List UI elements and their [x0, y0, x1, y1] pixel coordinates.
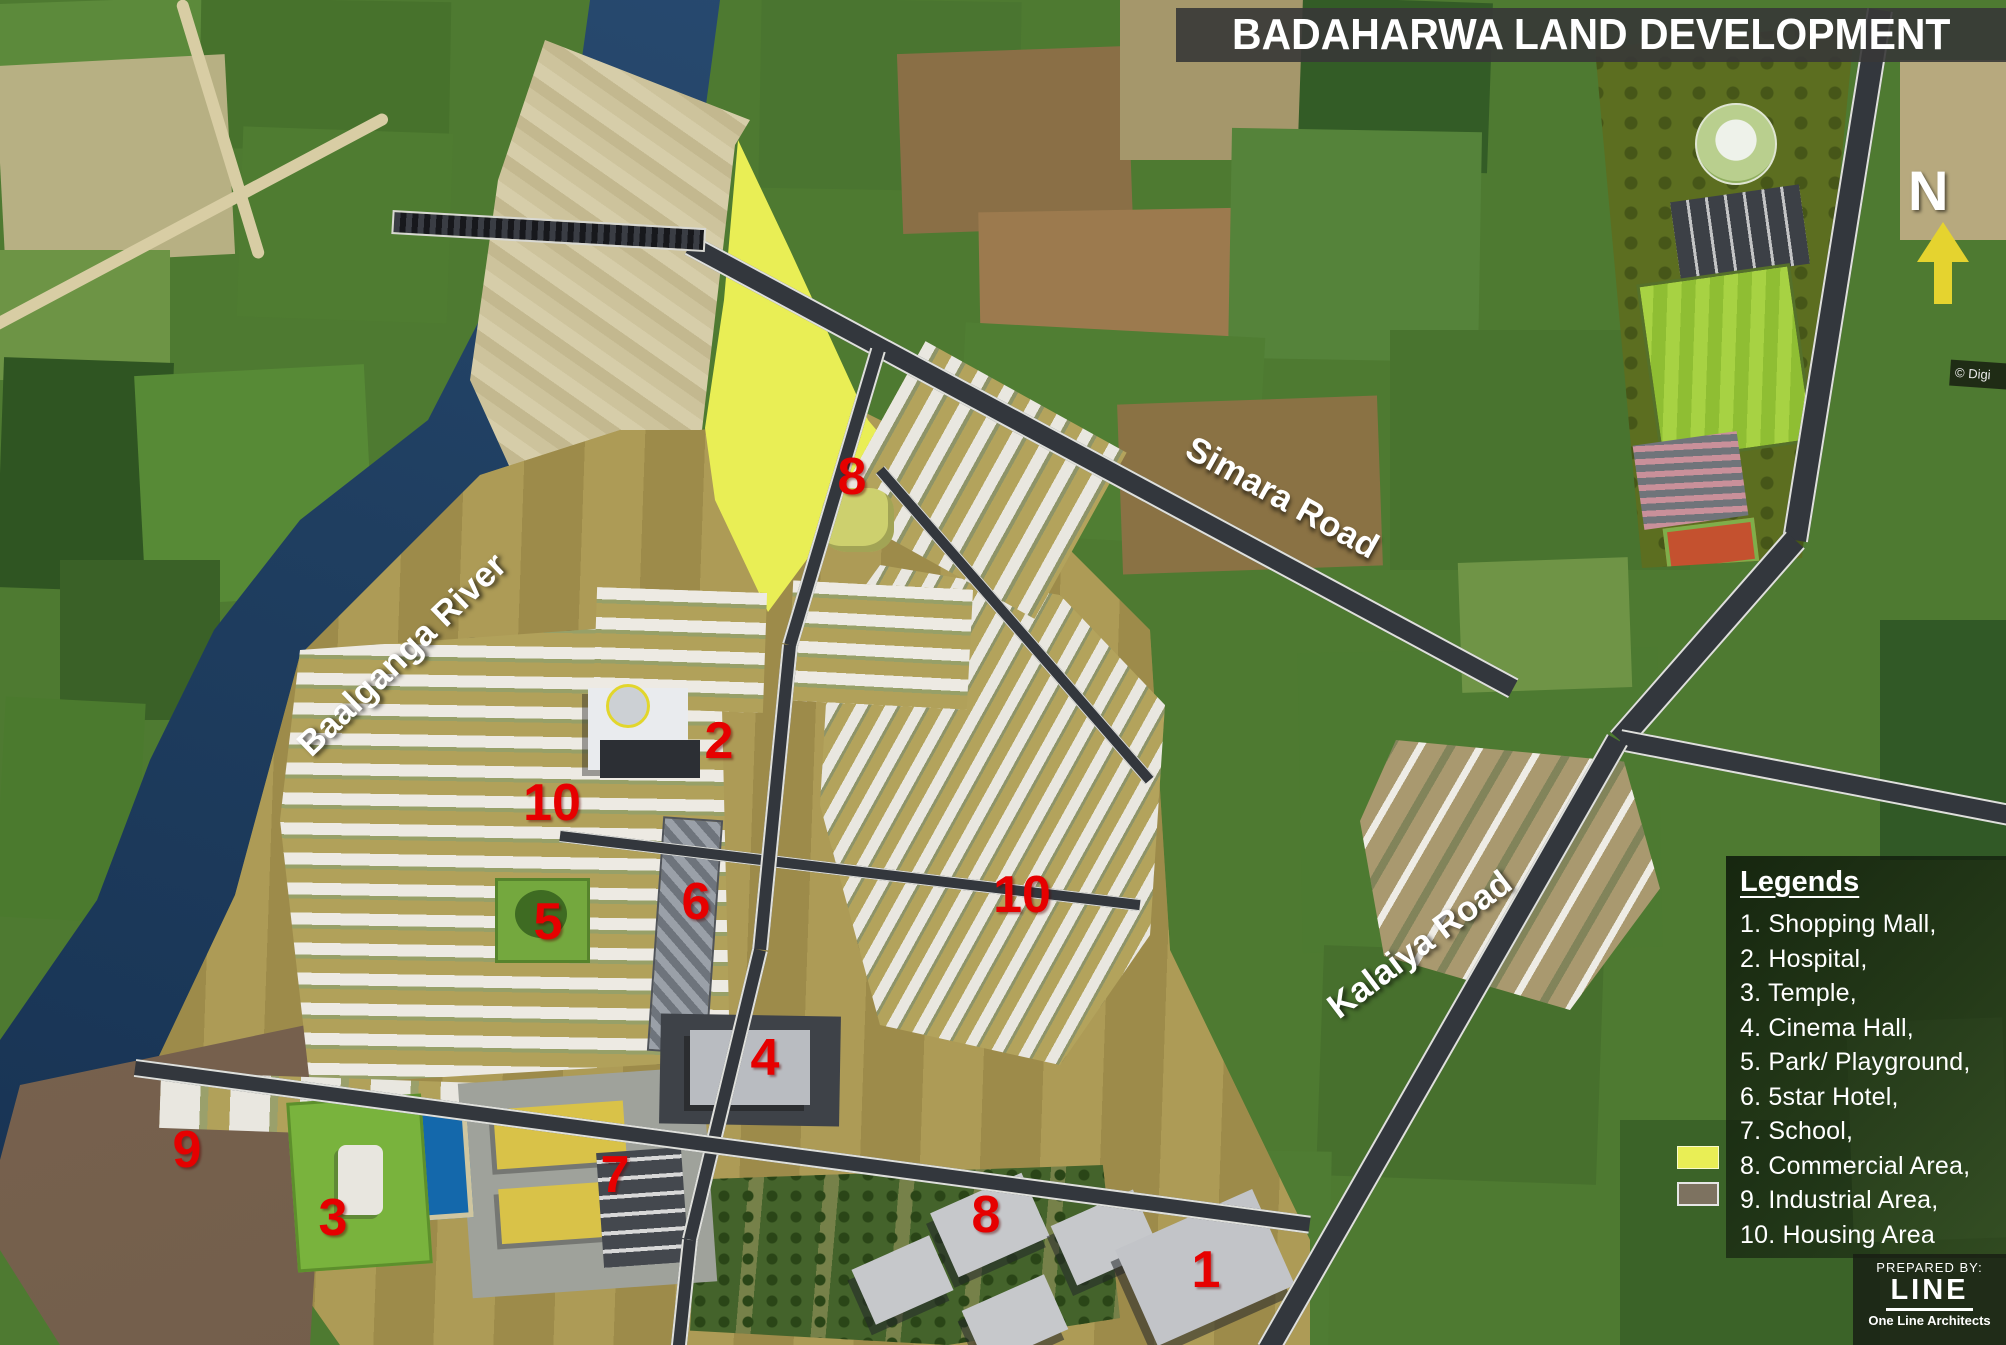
field-patch — [1228, 128, 1482, 362]
map-canvas: Simara Road Kalaiya Road Baalganga River… — [0, 0, 2006, 1345]
marker-commercial-north: 8 — [838, 451, 867, 503]
marker-park-playground: 5 — [534, 896, 563, 948]
legend-item: 3. Temple, — [1740, 976, 2000, 1011]
marker-housing-east: 10 — [993, 869, 1051, 921]
legend-item: 8. Commercial Area, — [1740, 1149, 2000, 1184]
playground-circle — [1695, 103, 1777, 185]
title-bar: BADAHARWA LAND DEVELOPMENT — [1176, 8, 2006, 62]
car-park-rows — [1633, 431, 1749, 530]
marker-commercial-south: 8 — [972, 1189, 1001, 1241]
legend-swatch-industrial — [1677, 1182, 1719, 1206]
legend-item: 2. Hospital, — [1740, 942, 2000, 977]
marker-hospital: 2 — [705, 715, 734, 767]
architect-logo: LINE — [1886, 1275, 1972, 1311]
sports-court — [1663, 518, 1760, 574]
legend-item: 9. Industrial Area, — [1740, 1183, 2000, 1218]
housing-rows — [787, 580, 973, 709]
marker-temple: 3 — [319, 1192, 348, 1244]
legend-list: 1. Shopping Mall, 2. Hospital, 3. Temple… — [1740, 907, 2000, 1252]
field-patch — [1880, 620, 2006, 860]
legend-item: 7. School, — [1740, 1114, 2000, 1149]
prepared-by-box: PREPARED BY: LINE One Line Architects — [1853, 1254, 2006, 1345]
legend-item: 6. 5star Hotel, — [1740, 1080, 2000, 1115]
page-title: BADAHARWA LAND DEVELOPMENT — [1232, 10, 1950, 60]
marker-housing-west: 10 — [523, 777, 581, 829]
helipad — [606, 684, 650, 728]
field-patch — [0, 54, 235, 266]
legend-item: 5. Park/ Playground, — [1740, 1045, 2000, 1080]
marker-industrial: 9 — [173, 1124, 202, 1176]
north-arrow-icon — [1934, 258, 1952, 304]
legend-item: 4. Cinema Hall, — [1740, 1011, 2000, 1046]
hospital-shadow-block — [600, 740, 700, 778]
imagery-watermark: © Digi — [1949, 360, 2006, 391]
marker-five-star-hotel: 6 — [682, 876, 711, 928]
marker-cinema-hall: 4 — [751, 1032, 780, 1084]
north-arrow-icon — [1917, 222, 1969, 262]
marker-shopping-mall: 1 — [1192, 1244, 1221, 1296]
architect-name: One Line Architects — [1853, 1313, 2006, 1328]
prepared-by-caption: PREPARED BY: — [1853, 1260, 2006, 1275]
field-patch — [897, 46, 1133, 234]
legend-item: 10. Housing Area — [1740, 1218, 2000, 1253]
marker-school: 7 — [601, 1149, 630, 1201]
legend-item: 1. Shopping Mall, — [1740, 907, 2000, 942]
north-label: N — [1908, 158, 1948, 223]
legend-heading: Legends — [1740, 866, 2000, 899]
legend-panel: Legends 1. Shopping Mall, 2. Hospital, 3… — [1726, 856, 2006, 1258]
legend-swatch-commercial — [1677, 1146, 1719, 1169]
